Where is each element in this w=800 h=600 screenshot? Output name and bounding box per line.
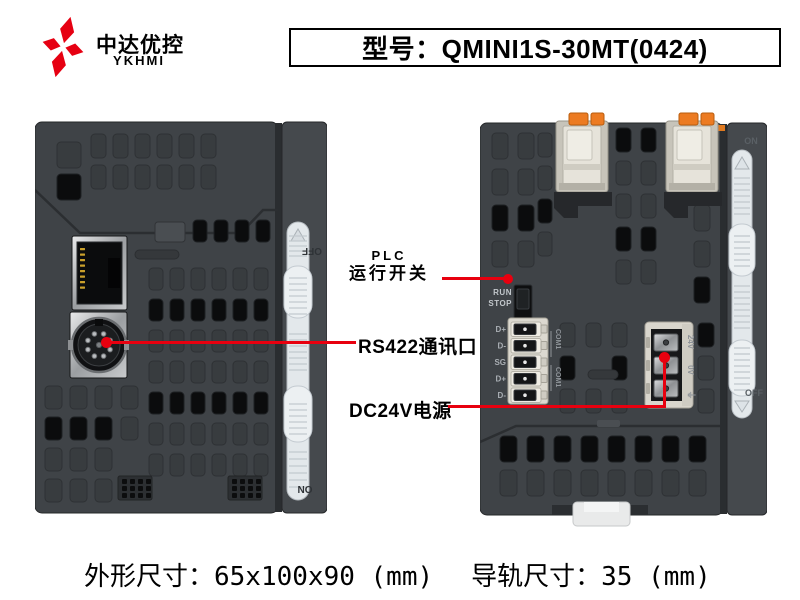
right-side-off-label: OFF — [745, 388, 763, 398]
rail-dimensions-text: 导轨尺寸：35 (mm) — [471, 556, 711, 593]
device-right-photo: RUN STOP D+D-SGD+D- COM1 COM1 24V 0V ⏚ — [480, 108, 767, 533]
power-24v-label: 24V — [686, 335, 695, 350]
run-label: RUN — [493, 288, 512, 297]
annotation-line-plc — [442, 277, 508, 280]
footer-dimensions: 外形尺寸：65x100x90 (mm) 导轨尺寸：35 (mm) — [0, 556, 800, 593]
dc24v-connector — [645, 322, 693, 408]
terminal-label-4: D- — [498, 391, 507, 400]
right-side-on-label: ON — [744, 136, 758, 146]
annotation-dc24v: DC24V电源 — [349, 396, 452, 423]
rj45-port — [72, 236, 127, 310]
rs422-din-connector — [68, 312, 129, 378]
annotation-plc-line2: 运行开关 — [336, 265, 442, 284]
annotation-line-rs422 — [109, 341, 356, 344]
annotation-line-dc24v-horizontal — [448, 405, 666, 408]
brand-subtitle: YKHMI — [96, 53, 182, 68]
terminal-block-2 — [664, 113, 722, 218]
annotation-plc-switch: PLC 运行开关 — [336, 249, 442, 284]
brand-logo-icon — [39, 14, 87, 80]
annotation-dot-plc — [503, 274, 513, 284]
left-din-slider — [284, 222, 312, 500]
terminal-block-1 — [554, 113, 612, 218]
power-ground-symbol: ⏚ — [686, 390, 696, 399]
product-spec-page: 中达优控 YKHMI 型号：QMINI1S-30MT(0424) — [0, 0, 800, 600]
model-title: 型号：QMINI1S-30MT(0424) — [289, 28, 781, 67]
com1-bottom-label: COM1 — [554, 367, 561, 387]
overall-dimensions-text: 外形尺寸：65x100x90 (mm) — [84, 556, 433, 593]
device-left-photo: OFF ON — [35, 118, 327, 518]
right-din-slider — [729, 150, 755, 418]
com1-top-label: COM1 — [554, 329, 561, 349]
comm-terminal-5pin — [508, 318, 548, 404]
terminal-label-3: D+ — [496, 375, 507, 384]
annotation-dot-rs422 — [101, 337, 112, 348]
annotation-plc-line1: PLC — [336, 249, 442, 263]
annotation-dot-dc24v — [659, 352, 670, 363]
terminal-label-0: D+ — [496, 325, 507, 334]
annotation-rs422: RS422通讯口 — [358, 332, 477, 359]
left-side-on-label: ON — [298, 483, 313, 494]
stop-label: STOP — [488, 299, 512, 308]
terminal-label-2: SG — [494, 358, 506, 367]
power-0v-label: 0V — [686, 365, 695, 375]
annotation-line-dc24v-vertical — [663, 356, 666, 408]
left-side-off-label: OFF — [302, 245, 322, 256]
din-rail-clip — [573, 502, 630, 526]
terminal-label-1: D- — [498, 342, 507, 351]
